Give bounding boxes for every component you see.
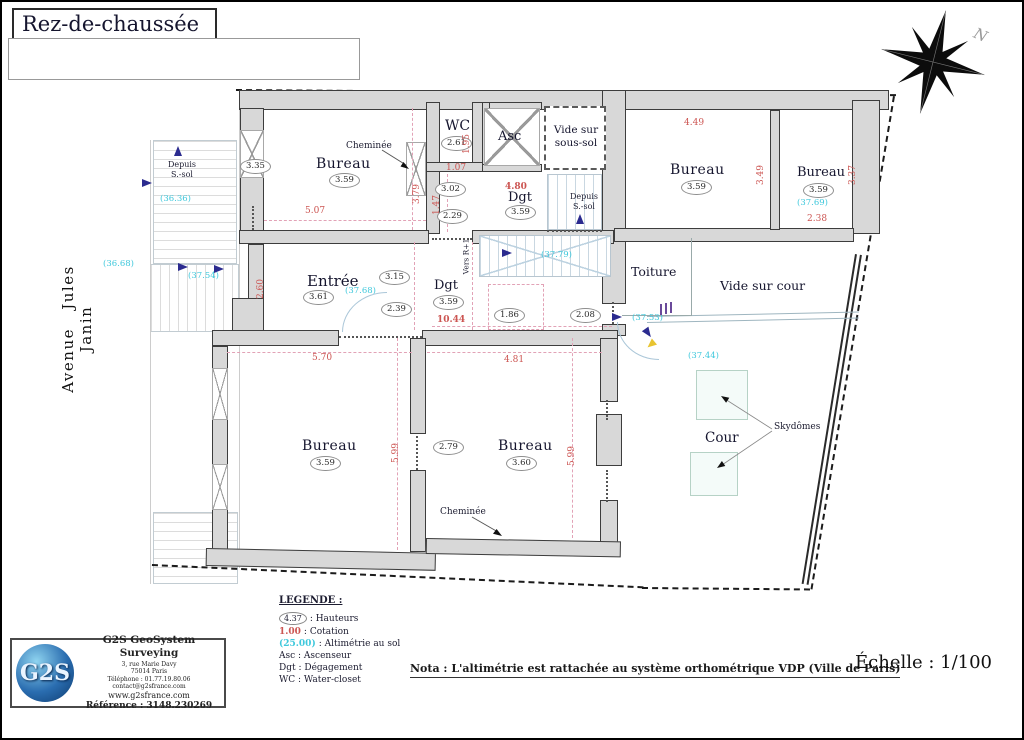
height-badge: 3.59 <box>505 205 536 220</box>
height-badge: 2.79 <box>433 440 464 455</box>
boundary-line <box>642 587 810 590</box>
scale-label: Échelle : 1/100 <box>855 652 992 673</box>
arrow-right <box>142 179 152 187</box>
legend-text: : Altimétrie au sol <box>319 639 401 649</box>
drawing-sheet: Rez-de-chaussée N Avenue Jules Janin <box>0 0 1024 740</box>
firm-phone: Téléphone : 01.77.19.80.06 <box>74 676 224 684</box>
door-opening <box>339 336 422 338</box>
firm-addr2: 75014 Paris <box>74 668 224 676</box>
window-marker <box>212 464 228 510</box>
firm-email: contact@g2sfrance.com <box>74 683 224 691</box>
cotation-line <box>427 352 602 353</box>
arrow-up <box>576 214 584 224</box>
survey-tick <box>665 303 667 314</box>
arrow-right <box>214 265 224 273</box>
alti-label: (37.79) <box>541 250 572 260</box>
dim-label: 2.60 <box>256 274 266 304</box>
height-badge: 3.59 <box>681 180 712 195</box>
dim-label: 5.99 <box>391 438 401 468</box>
cotation-line <box>572 338 573 538</box>
cheminee-leader <box>380 146 416 174</box>
height-badge: 3.59 <box>329 173 360 188</box>
door-opening <box>606 400 608 420</box>
depuis-ssol-label: Depuis S.-sol <box>160 160 204 179</box>
alti-label: (37.53) <box>632 313 663 323</box>
dim-label: 3.37 <box>848 160 858 190</box>
room-label-bureau-tr: Bureau <box>670 162 725 178</box>
room-label-bureau-bl: Bureau <box>302 438 357 454</box>
cotation-line <box>472 242 473 330</box>
skydomes-leaders <box>697 387 777 479</box>
legend-item-altimetrie: (25.00) : Altimétrie au sol <box>279 639 400 649</box>
firm-web: www.g2sfrance.com <box>74 691 224 701</box>
wall <box>212 330 339 346</box>
height-badge: 3.35 <box>240 159 271 174</box>
legend-text: : Hauteurs <box>310 614 359 624</box>
door-opening <box>606 470 608 502</box>
height-badge: 2.29 <box>437 209 468 224</box>
wall <box>239 230 429 244</box>
room-label-bureau-fr: Bureau <box>797 165 845 180</box>
property-line <box>150 140 151 584</box>
room-label-bureau-bm: Bureau <box>498 438 553 454</box>
firm-cartouche: G2S G2S GeoSystem Surveying 3, rue Marie… <box>10 638 226 708</box>
vers-r1-label: Vers R+1 <box>462 229 471 285</box>
dim-label: 5.70 <box>312 353 332 363</box>
cotation-line <box>264 220 426 221</box>
legend-cyan-symbol: (25.00) <box>279 639 316 649</box>
legend: LEGENDE : 4.37 : Hauteurs 1.00 : Cotatio… <box>279 595 400 687</box>
alti-label: (37.44) <box>688 351 719 361</box>
dim-label: 4.49 <box>684 118 704 128</box>
page-title: Rez-de-chaussée <box>12 8 217 42</box>
wall <box>410 338 426 434</box>
cheminee-leader <box>470 514 510 542</box>
room-label-dgt-top: Dgt <box>508 190 532 205</box>
dim-label: 3.49 <box>756 160 766 190</box>
room-label-bureau-tl: Bureau <box>316 156 371 172</box>
firm-info: G2S GeoSystem Surveying 3, rue Marie Dav… <box>74 634 224 712</box>
door-opening <box>416 436 418 470</box>
legend-item-hauteurs: 4.37 : Hauteurs <box>279 612 400 625</box>
subtitle-box <box>8 38 360 80</box>
cotation-box <box>488 284 544 330</box>
dim-label: 5.07 <box>305 206 325 216</box>
room-label-dgt-mid: Dgt <box>434 278 458 293</box>
skydomes-label: Skydômes <box>774 422 820 432</box>
height-badge: 2.39 <box>381 302 412 317</box>
wall <box>770 110 780 230</box>
wall <box>600 338 618 402</box>
alti-label: (37.69) <box>797 198 828 208</box>
firm-logo: G2S <box>16 644 74 702</box>
wall <box>596 414 622 466</box>
legend-title: LEGENDE : <box>279 595 400 606</box>
party-wall <box>802 254 862 585</box>
survey-tick <box>670 302 672 313</box>
arrow-right <box>178 263 188 271</box>
height-badge: 2.08 <box>570 308 601 323</box>
door-opening <box>547 230 602 232</box>
height-badge: 3.15 <box>379 270 410 285</box>
window-marker <box>212 368 228 420</box>
legend-item-cotation: 1.00 : Cotation <box>279 627 400 637</box>
dim-label: 10.44 <box>437 315 465 325</box>
cotation-line <box>414 242 415 330</box>
height-badge: 3.61 <box>303 290 334 305</box>
height-badge: 3.60 <box>506 456 537 471</box>
dim-label: 3.79 <box>412 179 422 209</box>
firm-name: G2S GeoSystem Surveying <box>74 634 224 660</box>
legend-red-symbol: 1.00 <box>279 627 301 637</box>
arrow-up <box>174 146 182 156</box>
dim-label: 2.38 <box>807 214 827 224</box>
room-label-toiture: Toiture <box>631 264 676 279</box>
legend-item-wc: WC : Water-closet <box>279 675 400 685</box>
door-opening <box>252 206 254 230</box>
dim-label: 1.07 <box>446 163 466 173</box>
firm-addr1: 3, rue Marie Davy <box>74 661 224 669</box>
dim-label: 5.99 <box>567 441 577 471</box>
court-line <box>647 318 859 323</box>
legend-item-asc: Asc : Ascenseur <box>279 651 400 661</box>
dim-label: 1.95 <box>462 130 472 158</box>
wall <box>422 330 618 346</box>
door-arc <box>342 292 387 332</box>
height-badge: 3.59 <box>803 183 834 198</box>
room-label-vide-ss: Vide sur sous-sol <box>549 124 603 149</box>
street-label: Avenue Jules Janin <box>59 244 95 414</box>
dim-label: 4.81 <box>504 355 524 365</box>
height-badge: 3.59 <box>433 295 464 310</box>
wall <box>426 538 621 557</box>
height-badge: 3.59 <box>310 456 341 471</box>
legend-item-dgt: Dgt : Dégagement <box>279 663 400 673</box>
arrow-right <box>502 249 512 257</box>
arrow-right <box>612 313 622 321</box>
alti-label: (36.36) <box>160 194 191 204</box>
nota-text: Nota : L'altimétrie est rattachée au sys… <box>410 662 900 678</box>
depuis-ssol-label: Depuis S.-sol <box>562 192 606 211</box>
survey-tick <box>660 304 662 315</box>
alti-label: (36.68) <box>103 259 134 269</box>
legend-text: : Cotation <box>304 627 349 637</box>
room-label-asc: Asc <box>498 129 521 144</box>
legend-oval-symbol: 4.37 <box>279 612 307 625</box>
alti-label: (37.68) <box>345 286 376 296</box>
wall <box>410 470 426 552</box>
room-label-vide-cour: Vide sur cour <box>720 278 805 293</box>
firm-ref: Référence : 3148.230269 <box>74 701 224 712</box>
